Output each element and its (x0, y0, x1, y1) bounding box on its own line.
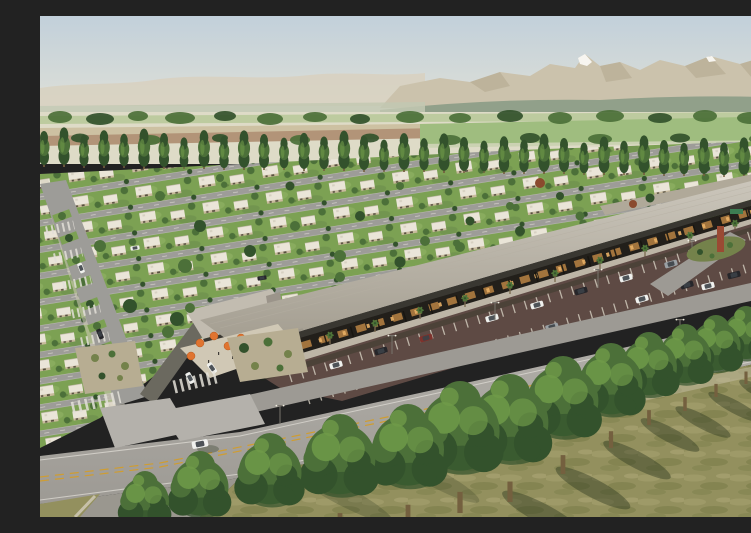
green-sign (730, 209, 743, 214)
roundabout-sculpture (717, 226, 724, 252)
aerial-render: Hazy morning sky Desert mountain range w… (40, 16, 751, 517)
